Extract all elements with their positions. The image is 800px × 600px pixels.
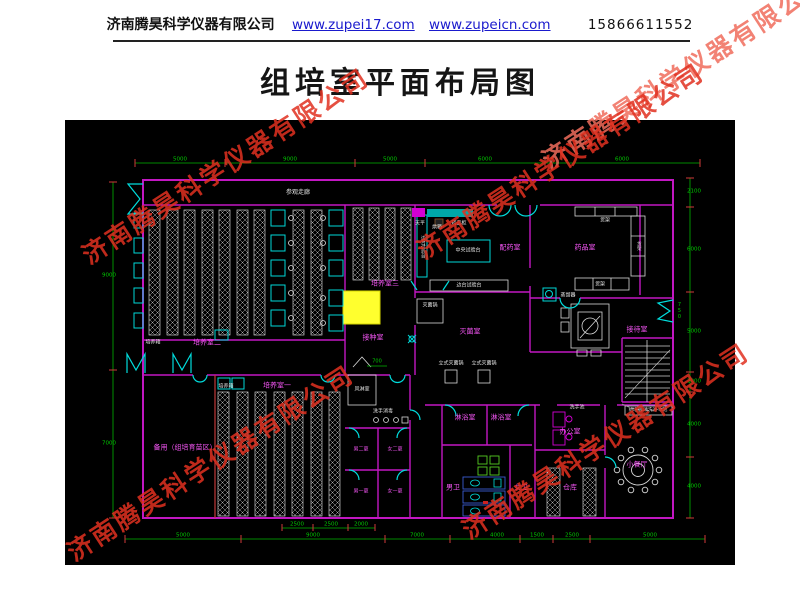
dim-top-3: 6000 (478, 157, 492, 163)
label-canguan-corridor: 参观走廊 (286, 190, 310, 196)
dim-sub-1: 2500 (324, 522, 338, 528)
room-label-nv2: 女二更 (387, 448, 402, 453)
room-label-nv1: 女一更 (387, 490, 402, 495)
room-label-yaopin: 药品室 (575, 245, 596, 252)
room-label-peiyang2: 培养室二 (193, 340, 221, 347)
dim-sub-0: 2500 (290, 522, 304, 528)
link-zupei17[interactable]: www.zupei17.com (292, 17, 415, 33)
dim-left-1: 7000 (102, 441, 116, 447)
link-zupeicn[interactable]: www.zupeicn.com (429, 17, 551, 33)
label-huojia-right: 货架 (636, 242, 641, 251)
label-xishouxiaodu: 洗手消毒 (373, 410, 393, 415)
dim-right-1: 6000 (687, 247, 701, 253)
room-label-nvwei: 女卫 (514, 485, 528, 492)
header-divider (113, 40, 690, 42)
room-label-nanwei: 男卫 (446, 485, 460, 492)
room-label-beiyong: 备用（组培育苗区） (154, 445, 217, 452)
dining-table (614, 447, 662, 493)
dim-top-1: 9000 (283, 157, 297, 163)
dim-bottom-4: 1500 (530, 533, 544, 539)
dim-bottom-2: 7000 (410, 533, 424, 539)
label-tianping: 天平 (415, 222, 425, 227)
page: 济南腾昊科学仪器有限公司 www.zupei17.com www.zupeicn… (0, 0, 800, 600)
dim-bottom-1: 9000 (306, 533, 320, 539)
room-label-bangong: 办公室 (560, 429, 581, 436)
wash-sinks (478, 456, 499, 475)
label-wash-counter: 组培瓶 清洗池 水池 (629, 409, 668, 414)
company-name: 济南腾昊科学仪器有限公司 (107, 17, 275, 33)
floorplan-svg (65, 120, 735, 565)
toilet-stalls (463, 477, 505, 516)
label-lishi-1: 立式灭菌锅 (438, 362, 463, 367)
room-label-canting: 小餐厅 (627, 462, 648, 469)
dim-door-750: 750 (677, 302, 682, 320)
room-label-miejun: 灭菌室 (460, 329, 481, 336)
dim-right-5: 4000 (687, 484, 701, 490)
floorplan-canvas: 培养室二 培养室一 培养室三 接种室 配药室 药品室 灭菌室 接待室 备用（组培… (65, 120, 735, 565)
room-label-linyu-2: 淋浴室 (491, 415, 512, 422)
label-peiyangxiang-2: 培养箱 (218, 385, 233, 390)
dim-mid-700: 700 (372, 360, 382, 365)
dim-bottom-0: 5000 (176, 533, 190, 539)
label-huojia-bottom: 货架 (595, 283, 605, 288)
label-zhengliu: 蒸馏器 (560, 294, 575, 299)
label-fenglin: 风淋室 (354, 388, 369, 393)
label-miejunguo: 灭菌锅 (422, 304, 437, 309)
dim-bottom-6: 5000 (643, 533, 657, 539)
label-central-bench: 中央试验台 (455, 249, 480, 254)
page-title: 组培室平面布局图 (0, 58, 800, 102)
label-peiyangxiang-1: 培养箱 (145, 341, 160, 346)
header: 济南腾昊科学仪器有限公司 www.zupei17.com www.zupeicn… (0, 14, 800, 34)
room-label-jiedai: 接待室 (627, 327, 648, 334)
dim-bottom-5: 2500 (565, 533, 579, 539)
shelves-and-boxes (348, 207, 672, 423)
room-label-nan1: 男一更 (353, 490, 368, 495)
room-label-linyu-1: 淋浴室 (455, 415, 476, 422)
label-side-bench-h: 边台试验台 (456, 284, 481, 289)
dim-right-2: 5000 (687, 329, 701, 335)
sofa-set (561, 304, 609, 356)
dim-top-2: 5000 (383, 157, 397, 163)
room-label-jiezhong: 接种室 (363, 335, 384, 342)
staircase (622, 340, 672, 411)
dim-left-0: 9000 (102, 273, 116, 279)
phone-number: 15866611552 (588, 17, 693, 33)
label-lishi-2: 立式灭菌锅 (471, 362, 496, 367)
dim-top-0: 5000 (173, 157, 187, 163)
room-label-peiyao: 配药室 (500, 245, 521, 252)
label-hongxiang: 烘箱 (432, 226, 442, 231)
label-yaopingui: 药品柜 (451, 222, 466, 227)
room-label-nan2: 男二更 (353, 448, 368, 453)
label-side-bench-v: 边台试验台 (420, 236, 425, 259)
room-label-peiyang3: 培养室三 (371, 281, 399, 288)
dim-right-4: 4000 (687, 422, 701, 428)
label-huojia-top: 货架 (600, 219, 610, 224)
dim-right-3: 2000 (687, 379, 701, 385)
dim-top-4: 6000 (615, 157, 629, 163)
dim-sub-2: 2000 (354, 522, 368, 528)
dim-bottom-3: 4000 (490, 533, 504, 539)
highlight-yellow-unit (343, 291, 380, 324)
dim-right-0: 2100 (687, 189, 701, 195)
room-label-cangku: 仓库 (563, 485, 577, 492)
room-label-peiyang1: 培养室一 (263, 383, 291, 390)
label-xishouchi: 洗手池 (569, 406, 584, 411)
